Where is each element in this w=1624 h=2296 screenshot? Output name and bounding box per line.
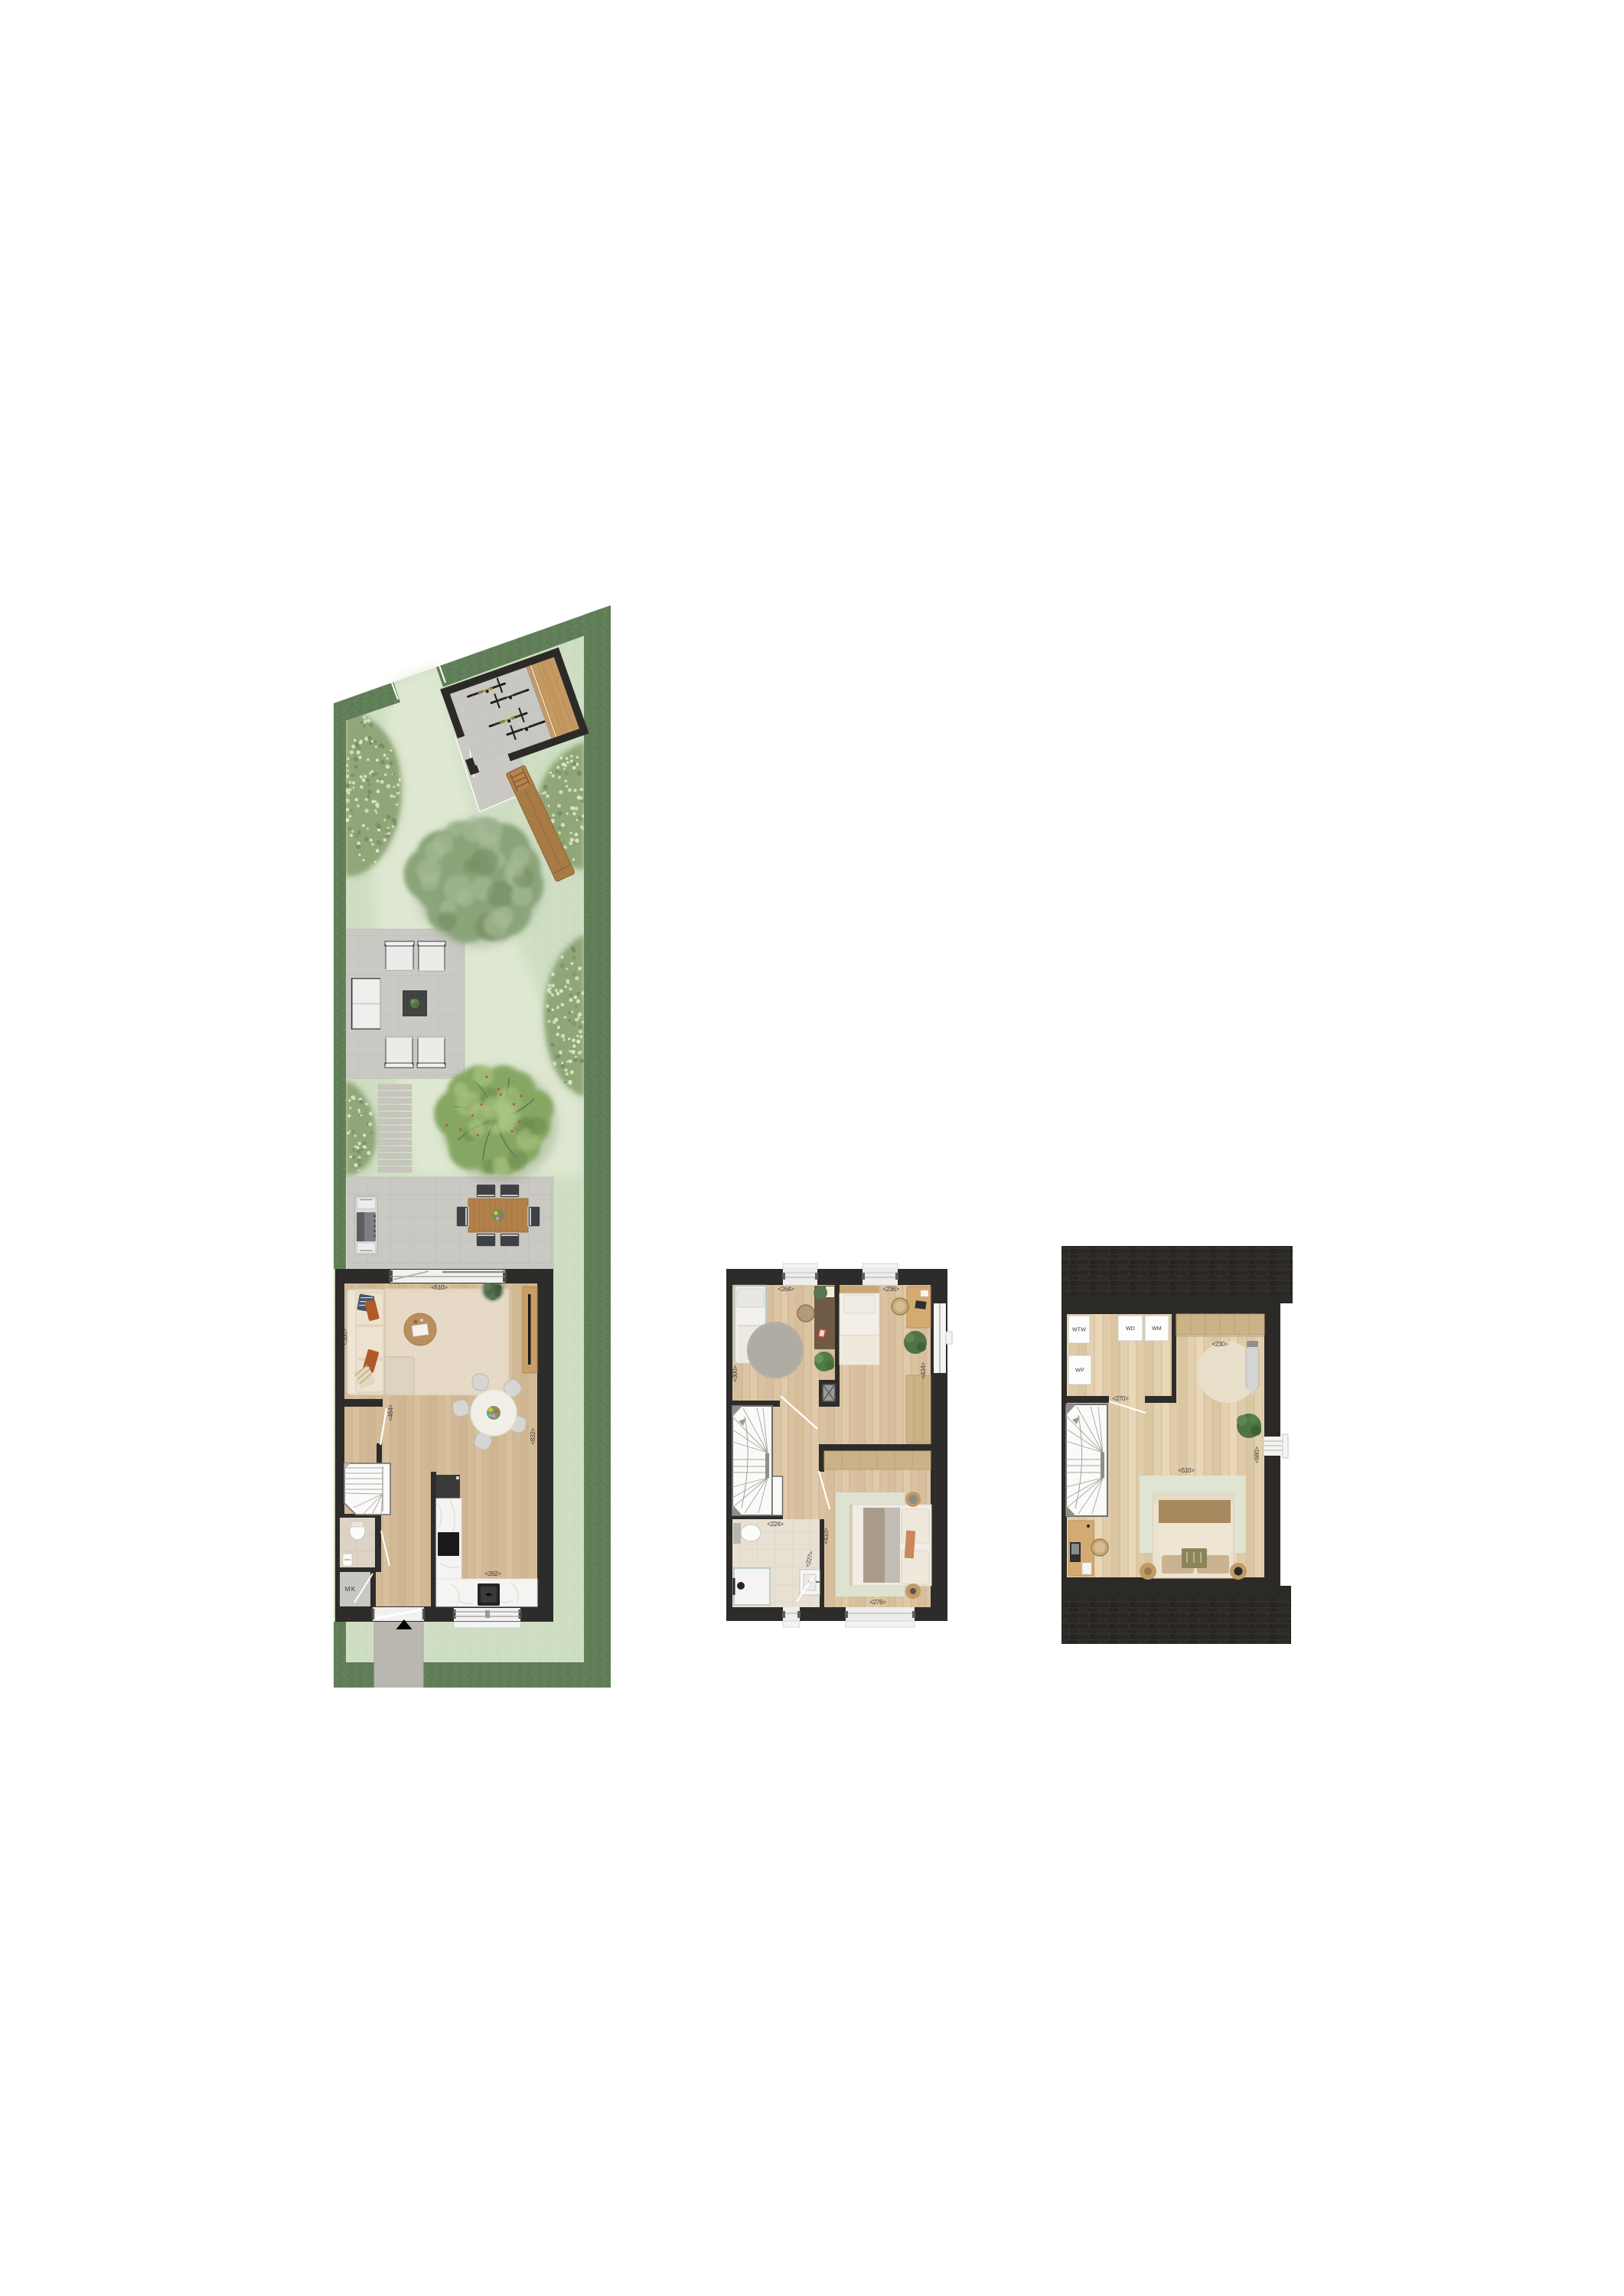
svg-text:<510>: <510> — [1178, 1467, 1195, 1474]
svg-text:WTW: WTW — [1072, 1328, 1086, 1333]
svg-text:<224>: <224> — [767, 1521, 784, 1528]
svg-text:WP: WP — [1075, 1368, 1084, 1374]
svg-text:WM: WM — [1152, 1326, 1162, 1332]
svg-text:<264>: <264> — [778, 1286, 794, 1293]
svg-text:<510>: <510> — [431, 1284, 448, 1291]
svg-text:<300>: <300> — [342, 1329, 349, 1345]
svg-text:<236>: <236> — [882, 1286, 899, 1293]
svg-text:<410>: <410> — [823, 1528, 830, 1544]
svg-text:<262>: <262> — [484, 1570, 501, 1577]
svg-text:WD: WD — [1126, 1326, 1135, 1332]
svg-text:<270>: <270> — [1112, 1395, 1129, 1402]
svg-text:<680>: <680> — [1254, 1446, 1260, 1463]
svg-text:<434>: <434> — [920, 1362, 927, 1379]
svg-text:<484>: <484> — [387, 1404, 394, 1421]
svg-text:<230>: <230> — [1211, 1341, 1228, 1348]
svg-text:<276>: <276> — [869, 1599, 886, 1606]
svg-text:<300>: <300> — [732, 1365, 739, 1382]
svg-text:<832>: <832> — [530, 1428, 536, 1445]
svg-text:MK: MK — [345, 1585, 357, 1593]
